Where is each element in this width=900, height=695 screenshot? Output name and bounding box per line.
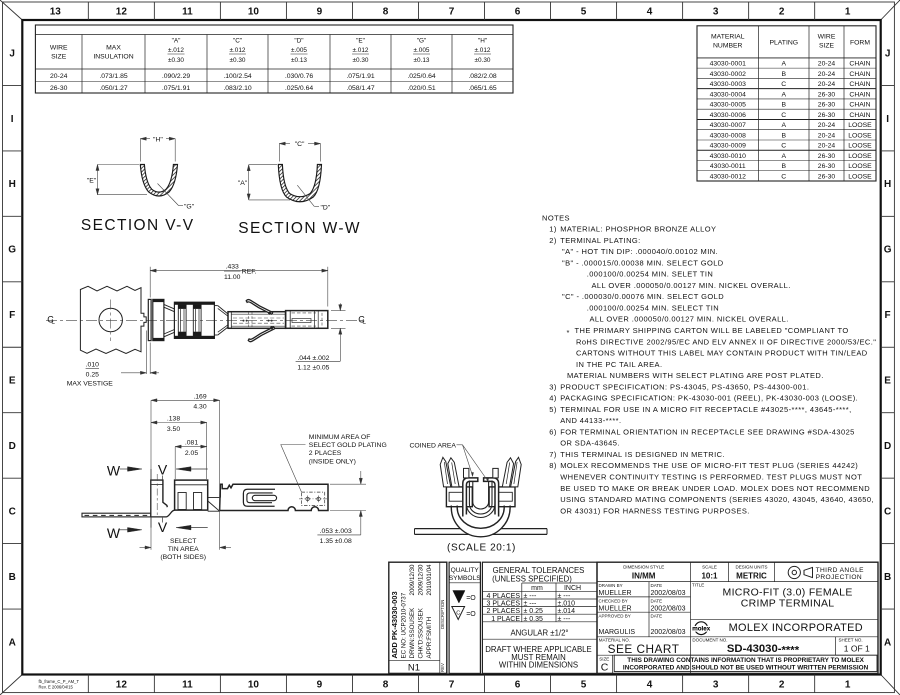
svg-text:43030-0002: 43030-0002 <box>710 71 747 78</box>
svg-text:± ---: ± --- <box>558 616 571 623</box>
svg-text:2 PLACES: 2 PLACES <box>309 450 342 457</box>
svg-text:SIZE: SIZE <box>51 54 67 61</box>
svg-text:E: E <box>9 376 16 387</box>
svg-text:"B" - .000015/0.00038 MIN. SEL: "B" - .000015/0.00038 MIN. SELECT GOLD <box>562 258 724 267</box>
svg-text:9: 9 <box>317 679 323 690</box>
svg-text:SEE CHART: SEE CHART <box>608 642 680 656</box>
svg-text:"H": "H" <box>478 38 487 45</box>
svg-text:LOOSE: LOOSE <box>848 173 872 180</box>
svg-text:INCORPORATED AND SHOULD NOT BE: INCORPORATED AND SHOULD NOT BE USED WITH… <box>623 665 869 672</box>
svg-text:H: H <box>884 179 891 190</box>
svg-text:MATERIAL NUMBERS WITH SELECT P: MATERIAL NUMBERS WITH SELECT PLATING ARE… <box>567 371 824 380</box>
svg-text:SHEET NO.: SHEET NO. <box>839 638 863 643</box>
svg-text:TERMINAL PLATING:: TERMINAL PLATING: <box>560 236 641 245</box>
svg-text:REF.: REF. <box>242 268 257 275</box>
svg-text:2009/12/30: 2009/12/30 <box>418 564 425 596</box>
svg-text:.073/1.85: .073/1.85 <box>99 73 128 80</box>
svg-text:I: I <box>11 114 14 125</box>
svg-text:1 OF 1: 1 OF 1 <box>844 643 870 653</box>
svg-text:A: A <box>781 61 786 68</box>
svg-text:3.50: 3.50 <box>167 426 180 433</box>
svg-text:6): 6) <box>549 427 557 436</box>
svg-text:B: B <box>781 71 786 78</box>
svg-text:"D": "D" <box>294 38 303 45</box>
svg-text:.075/1.91: .075/1.91 <box>162 85 191 92</box>
svg-text:"E": "E" <box>356 38 365 45</box>
svg-text:I: I <box>886 114 889 125</box>
svg-text:.020/0.51: .020/0.51 <box>407 85 436 92</box>
svg-text:0.25: 0.25 <box>86 371 99 378</box>
svg-text:REV: REV <box>440 663 445 672</box>
svg-text:.433: .433 <box>226 264 239 271</box>
svg-text:MINIMUM AREA OF: MINIMUM AREA OF <box>309 434 371 441</box>
svg-text:C: C <box>781 112 786 119</box>
svg-text:±0.30: ±0.30 <box>475 57 491 64</box>
svg-text:MOLEX INCORPORATED: MOLEX INCORPORATED <box>729 622 863 634</box>
svg-text:20-24: 20-24 <box>818 132 836 139</box>
svg-text:43030-0012: 43030-0012 <box>710 173 747 180</box>
svg-text:C: C <box>781 81 786 88</box>
svg-text:"H": "H" <box>153 136 163 143</box>
svg-text:.044 ±.002: .044 ±.002 <box>297 355 329 362</box>
svg-text:CHAIN: CHAIN <box>849 91 870 98</box>
svg-text:G: G <box>8 245 16 256</box>
svg-text:2002/08/03: 2002/08/03 <box>651 590 686 597</box>
svg-text:20-24: 20-24 <box>818 71 836 78</box>
svg-text:LOOSE: LOOSE <box>848 153 872 160</box>
svg-text:2: 2 <box>779 7 785 18</box>
svg-text:CARTONS WITHOUT THIS LABEL MAY: CARTONS WITHOUT THIS LABEL MAY CONTAIN P… <box>576 349 868 358</box>
svg-text:CRIMP TERMINAL: CRIMP TERMINAL <box>741 598 835 610</box>
svg-text:SELECT: SELECT <box>170 538 196 545</box>
svg-text:±.012: ±.012 <box>168 47 184 54</box>
svg-text:B: B <box>781 102 786 109</box>
svg-text:±.012: ±.012 <box>475 47 491 54</box>
svg-text:1.35 ±0.08: 1.35 ±0.08 <box>320 538 352 545</box>
svg-text:THIRD ANGLE: THIRD ANGLE <box>816 567 865 574</box>
svg-text:E: E <box>884 376 891 387</box>
svg-text:2009/12/30: 2009/12/30 <box>409 564 416 596</box>
svg-text:MATERIAL: MATERIAL <box>711 34 745 41</box>
svg-text:DATE: DATE <box>651 614 663 619</box>
svg-text:THIS TERMINAL IS DESIGNED IN M: THIS TERMINAL IS DESIGNED IN METRIC. <box>560 450 725 459</box>
svg-text:.025/0.64: .025/0.64 <box>285 85 314 92</box>
svg-text:DESCRIPTION: DESCRIPTION <box>440 600 445 629</box>
svg-text:20-24: 20-24 <box>50 73 68 80</box>
svg-text:C: C <box>456 610 460 616</box>
svg-text:BE USED TO MAKE OR BREAK UNDER: BE USED TO MAKE OR BREAK UNDER LOAD. MOL… <box>560 484 870 493</box>
svg-text:SCALE: SCALE <box>702 565 717 570</box>
svg-text:43030-0010: 43030-0010 <box>710 153 747 160</box>
svg-text:LOOSE: LOOSE <box>848 122 872 129</box>
svg-text:QUALITY: QUALITY <box>451 567 480 574</box>
svg-text:C: C <box>781 143 786 150</box>
svg-text:*: * <box>567 328 570 337</box>
svg-text:F: F <box>9 310 15 321</box>
svg-text:10: 10 <box>248 7 260 18</box>
svg-text:MARGULIS: MARGULIS <box>599 629 636 636</box>
svg-text:±.005: ±.005 <box>291 47 307 54</box>
svg-text:D: D <box>9 441 16 452</box>
svg-text:12: 12 <box>116 7 128 18</box>
svg-text:1): 1) <box>549 225 557 234</box>
svg-text:"C": "C" <box>233 38 242 45</box>
svg-text:CHAIN: CHAIN <box>849 71 870 78</box>
svg-text:(BOTH SIDES): (BOTH SIDES) <box>160 554 206 561</box>
svg-text:7: 7 <box>449 7 455 18</box>
svg-text:DRWN:SSOUSEK: DRWN:SSOUSEK <box>409 607 416 659</box>
svg-text:D: D <box>884 441 891 452</box>
svg-text:A: A <box>781 91 786 98</box>
svg-text:43030-0007: 43030-0007 <box>710 122 747 129</box>
svg-text:WIRE: WIRE <box>50 45 68 52</box>
svg-text:molex: molex <box>692 625 710 632</box>
svg-text:3: 3 <box>713 679 719 690</box>
svg-text:CHAIN: CHAIN <box>849 102 870 109</box>
svg-text:.010: .010 <box>86 361 99 368</box>
svg-text:THE PRIMARY SHIPPING CARTON WI: THE PRIMARY SHIPPING CARTON WILL BE LABE… <box>575 326 849 335</box>
svg-text:CHAIN: CHAIN <box>849 61 870 68</box>
svg-text:13: 13 <box>50 7 62 18</box>
svg-text:± 0.25: ± 0.25 <box>524 608 544 615</box>
svg-text:11: 11 <box>182 7 193 18</box>
svg-text:MUELLER: MUELLER <box>599 590 632 597</box>
svg-text:6: 6 <box>515 679 521 690</box>
svg-text:J: J <box>9 48 15 59</box>
svg-text:INSULATION: INSULATION <box>93 54 133 61</box>
svg-text:± ---: ± --- <box>524 601 537 608</box>
svg-text:±.010: ±.010 <box>558 601 576 608</box>
svg-text:4: 4 <box>647 679 653 690</box>
svg-text:2002/08/03: 2002/08/03 <box>651 606 686 613</box>
svg-text:.082/2.08: .082/2.08 <box>468 73 497 80</box>
svg-text:LOOSE: LOOSE <box>848 143 872 150</box>
svg-text:8: 8 <box>383 679 389 690</box>
svg-text:26-30: 26-30 <box>818 173 836 180</box>
svg-text:A: A <box>884 637 891 648</box>
svg-text:A: A <box>781 153 786 160</box>
svg-text:2): 2) <box>549 236 557 245</box>
svg-text:SELECT GOLD PLATING: SELECT GOLD PLATING <box>309 442 387 449</box>
svg-text:MICRO-FIT (3.0) FEMALE: MICRO-FIT (3.0) FEMALE <box>723 586 853 598</box>
svg-text:26-30: 26-30 <box>818 91 836 98</box>
svg-text:SIZE: SIZE <box>819 43 835 50</box>
svg-text:DOCUMENT NO.: DOCUMENT NO. <box>692 638 727 643</box>
svg-text:(INSIDE ONLY): (INSIDE ONLY) <box>309 459 356 466</box>
svg-text:43030-0008: 43030-0008 <box>710 132 747 139</box>
svg-text:C: C <box>781 173 786 180</box>
svg-text:1 PLACE: 1 PLACE <box>491 616 520 623</box>
svg-text:2: 2 <box>779 679 785 690</box>
svg-text:7): 7) <box>549 450 557 459</box>
svg-text:"C": "C" <box>295 141 305 148</box>
svg-text:OR 43031) FOR HARNESS TESTING: OR 43031) FOR HARNESS TESTING PURPOSES. <box>560 506 750 515</box>
svg-text:10: 10 <box>248 679 260 690</box>
svg-text:MAX: MAX <box>106 45 121 52</box>
svg-text:.065/1.65: .065/1.65 <box>468 85 497 92</box>
svg-text:±.014: ±.014 <box>558 608 576 615</box>
svg-text:WIRE: WIRE <box>818 34 836 41</box>
svg-text:.083/2.10: .083/2.10 <box>223 85 252 92</box>
svg-text:ANGULAR ±1/2°: ANGULAR ±1/2° <box>510 629 568 638</box>
svg-text:±.005: ±.005 <box>414 47 430 54</box>
svg-text:SECTION W-W: SECTION W-W <box>238 220 361 237</box>
svg-text:43030-0003: 43030-0003 <box>710 81 747 88</box>
svg-text:9: 9 <box>317 7 323 18</box>
svg-text:±0.30: ±0.30 <box>168 57 184 64</box>
svg-text:L: L <box>51 319 55 326</box>
svg-text:2002/08/03: 2002/08/03 <box>651 629 686 636</box>
svg-text:TITLE: TITLE <box>692 583 704 588</box>
svg-text:7: 7 <box>449 679 455 690</box>
svg-text:ALL OVER .000050/0.00127 MIN.: ALL OVER .000050/0.00127 MIN. NICKEL OVE… <box>590 315 789 324</box>
svg-text:8: 8 <box>383 7 389 18</box>
svg-text:4): 4) <box>549 394 557 403</box>
svg-text:± 0.35: ± 0.35 <box>524 616 544 623</box>
svg-text:20-24: 20-24 <box>818 81 836 88</box>
svg-text:H: H <box>9 179 16 190</box>
svg-text:C: C <box>884 506 891 517</box>
svg-text:4: 4 <box>647 7 653 18</box>
svg-text:APPR:FSMITH: APPR:FSMITH <box>426 617 433 659</box>
svg-text:26-30: 26-30 <box>818 102 836 109</box>
svg-text:F: F <box>885 310 891 321</box>
svg-text:WITHIN DIMENSIONS: WITHIN DIMENSIONS <box>499 661 578 670</box>
svg-text:A: A <box>781 122 786 129</box>
svg-text:C: C <box>601 661 609 673</box>
svg-text:.090/2.29: .090/2.29 <box>162 73 191 80</box>
svg-text:CHK'D:SSOUSEK: CHK'D:SSOUSEK <box>418 607 425 658</box>
svg-text:±.012: ±.012 <box>230 47 246 54</box>
svg-text:6: 6 <box>515 7 521 18</box>
svg-text:11.00: 11.00 <box>224 274 241 281</box>
svg-text:1.12 ±0.05: 1.12 ±0.05 <box>297 364 329 371</box>
svg-text:5: 5 <box>581 7 587 18</box>
svg-text:Rev. E 2006/04/15: Rev. E 2006/04/15 <box>39 685 74 690</box>
svg-text:EC NO: UCP2010-0737: EC NO: UCP2010-0737 <box>401 592 408 658</box>
svg-text:G: G <box>884 245 892 256</box>
svg-text:MAX VESTIGE: MAX VESTIGE <box>67 380 114 387</box>
svg-text:± ---: ± --- <box>558 593 571 600</box>
svg-text:TIN AREA: TIN AREA <box>168 546 199 553</box>
svg-text:"C" - .000030/0.00076 MIN. SEL: "C" - .000030/0.00076 MIN. SELECT GOLD <box>562 292 724 301</box>
svg-text:26-30: 26-30 <box>818 163 836 170</box>
svg-text:.053 ±.003: .053 ±.003 <box>320 528 352 535</box>
svg-text:DRAWN BY: DRAWN BY <box>599 583 623 588</box>
svg-text:B: B <box>9 572 16 583</box>
svg-text:A: A <box>9 637 16 648</box>
svg-text:TERMINAL FOR USE IN A MICRO FI: TERMINAL FOR USE IN A MICRO FIT RECEPTAC… <box>560 405 851 414</box>
svg-text:L: L <box>362 319 366 326</box>
svg-text:2 PLACES: 2 PLACES <box>487 608 521 615</box>
svg-text:DESIGN UNITS: DESIGN UNITS <box>735 565 767 570</box>
svg-text:3 PLACES: 3 PLACES <box>487 601 521 608</box>
svg-text:V: V <box>158 461 168 477</box>
svg-text:=O: =O <box>466 595 476 602</box>
svg-text:43030-0005: 43030-0005 <box>710 102 747 109</box>
svg-text:APPROVED BY: APPROVED BY <box>599 614 631 619</box>
svg-text:43030-0009: 43030-0009 <box>710 143 747 150</box>
svg-text:26-30: 26-30 <box>50 85 68 92</box>
svg-text:PLATING: PLATING <box>769 40 798 47</box>
svg-text:±0.30: ±0.30 <box>353 57 369 64</box>
svg-text:4.30: 4.30 <box>193 404 206 411</box>
svg-text:3): 3) <box>549 382 557 391</box>
svg-text:.058/1.47: .058/1.47 <box>346 85 375 92</box>
svg-text:INCH: INCH <box>564 585 581 592</box>
svg-text:(UNLESS SPECIFIED): (UNLESS SPECIFIED) <box>492 574 572 583</box>
svg-text:.100/2.54: .100/2.54 <box>223 73 252 80</box>
svg-text:COINED AREA: COINED AREA <box>410 443 457 450</box>
svg-text:1: 1 <box>845 679 851 690</box>
svg-text:SECTION V-V: SECTION V-V <box>81 217 195 234</box>
svg-text:AND 44133-****.: AND 44133-****. <box>560 416 621 425</box>
svg-text:.075/1.91: .075/1.91 <box>346 73 375 80</box>
svg-text:"A" - HOT TIN DIP: .000040/0.0: "A" - HOT TIN DIP: .000040/0.00102 MIN. <box>562 247 718 256</box>
svg-text:USING STANDARD MATING COMPONEN: USING STANDARD MATING COMPONENTS (SERIES… <box>560 495 874 504</box>
svg-text:SD-43030-****: SD-43030-**** <box>727 643 800 657</box>
svg-text:mm: mm <box>531 585 543 592</box>
svg-text:11: 11 <box>182 679 193 690</box>
svg-text:NUMBER: NUMBER <box>713 43 743 50</box>
svg-text:N1: N1 <box>408 663 420 674</box>
svg-text:5: 5 <box>581 679 587 690</box>
svg-text:.138: .138 <box>167 416 180 423</box>
svg-text:FOR TERMINAL ORIENTATION IN RE: FOR TERMINAL ORIENTATION IN RECEPTACLE S… <box>560 427 855 436</box>
svg-text:C: C <box>9 506 16 517</box>
svg-text:DIMENSION STYLE: DIMENSION STYLE <box>623 565 664 570</box>
svg-text:"G": "G" <box>417 38 427 45</box>
svg-text:NOTES: NOTES <box>542 213 570 222</box>
svg-text:FORM: FORM <box>850 40 870 47</box>
svg-text:CHAIN: CHAIN <box>849 112 870 119</box>
svg-text:"A": "A" <box>172 38 181 45</box>
svg-text:.169: .169 <box>193 393 206 400</box>
svg-text:.000100/0.00254 MIN. SELET TIN: .000100/0.00254 MIN. SELET TIN <box>587 270 714 279</box>
svg-text:±0.13: ±0.13 <box>291 57 307 64</box>
svg-text:.050/1.27: .050/1.27 <box>99 85 128 92</box>
svg-text:±0.30: ±0.30 <box>230 57 246 64</box>
svg-text:LOOSE: LOOSE <box>848 132 872 139</box>
svg-text:CHAIN: CHAIN <box>849 81 870 88</box>
svg-text:METRIC: METRIC <box>736 571 767 580</box>
svg-text:PROJECTION: PROJECTION <box>816 574 863 581</box>
svg-text:43030-0011: 43030-0011 <box>710 163 746 170</box>
svg-text:.030/0.76: .030/0.76 <box>285 73 314 80</box>
svg-text:THIS DRAWING CONTAINS INFORMAT: THIS DRAWING CONTAINS INFORMATION THAT I… <box>627 657 864 664</box>
svg-text:4 PLACES: 4 PLACES <box>487 593 521 600</box>
svg-text:(SCALE 20:1): (SCALE 20:1) <box>447 543 516 554</box>
svg-text:IN THE PC TAIL AREA.: IN THE PC TAIL AREA. <box>576 360 662 369</box>
svg-text:3: 3 <box>713 7 719 18</box>
svg-text:PRODUCT SPECIFICATION: PS-4304: PRODUCT SPECIFICATION: PS-43045, PS-4365… <box>560 382 809 391</box>
svg-text:fb_frame_C_P_AM_T: fb_frame_C_P_AM_T <box>39 679 80 684</box>
svg-text:43030-0006: 43030-0006 <box>710 112 747 119</box>
svg-text:8): 8) <box>549 461 557 470</box>
svg-text:12: 12 <box>116 679 128 690</box>
svg-text:MOLEX RECOMMENDS THE USE OF MI: MOLEX RECOMMENDS THE USE OF MICRO-FIT TE… <box>560 461 858 470</box>
svg-text:26-30: 26-30 <box>818 112 836 119</box>
svg-text:CHECKED BY: CHECKED BY <box>599 598 628 603</box>
svg-text:MUELLER: MUELLER <box>599 606 632 613</box>
svg-text:"G": "G" <box>184 204 195 211</box>
svg-text:B: B <box>884 572 891 583</box>
svg-text:PACKAGING SPECIFICATION: PK-43: PACKAGING SPECIFICATION: PK-43030-001 (R… <box>560 394 858 403</box>
svg-text:2.05: 2.05 <box>185 450 198 457</box>
svg-text:IN/MM: IN/MM <box>632 571 656 580</box>
svg-text:RoHS DIRECTIVE 2002/95/EC AN: RoHS DIRECTIVE 2002/95/EC AND ELV ANNEX … <box>576 337 876 346</box>
svg-text:W: W <box>107 525 121 541</box>
svg-text:.025/0.64: .025/0.64 <box>407 73 436 80</box>
svg-text:SYMBOLS: SYMBOLS <box>449 575 481 582</box>
svg-text:±0.13: ±0.13 <box>414 57 430 64</box>
svg-text:"D": "D" <box>321 205 331 212</box>
svg-text:B: B <box>781 163 786 170</box>
svg-text:DATE: DATE <box>651 598 663 603</box>
svg-text:"E": "E" <box>87 177 97 184</box>
svg-text:43030-0001: 43030-0001 <box>710 61 747 68</box>
svg-text:±.012: ±.012 <box>353 47 369 54</box>
svg-text:26-30: 26-30 <box>818 153 836 160</box>
svg-text:20-24: 20-24 <box>818 61 836 68</box>
svg-text:1: 1 <box>845 7 851 18</box>
svg-text:MATERIAL: PHOSPHOR BRONZE ALLO: MATERIAL: PHOSPHOR BRONZE ALLOY <box>560 225 716 234</box>
svg-text:20-24: 20-24 <box>818 143 836 150</box>
svg-text:J: J <box>885 48 891 59</box>
svg-text:2010/01/04: 2010/01/04 <box>426 564 433 596</box>
svg-text:ADD PK-43030-003: ADD PK-43030-003 <box>390 591 399 658</box>
svg-text:± ---: ± --- <box>524 593 537 600</box>
svg-text:.000100/0.00254 MIN. SELECT TI: .000100/0.00254 MIN. SELECT TIN <box>587 303 719 312</box>
svg-text:5): 5) <box>549 405 557 414</box>
svg-text:.081: .081 <box>185 440 198 447</box>
svg-text:10:1: 10:1 <box>701 571 718 580</box>
svg-text:OR SDA-43645.: OR SDA-43645. <box>560 439 620 448</box>
svg-text:WHENEVER CONTINUITY TESTING IS: WHENEVER CONTINUITY TESTING IS PERFORMED… <box>560 473 862 482</box>
svg-text:LOOSE: LOOSE <box>848 163 872 170</box>
svg-text:DATE: DATE <box>651 583 663 588</box>
svg-text:=O: =O <box>466 611 476 618</box>
svg-text:20-24: 20-24 <box>818 122 836 129</box>
svg-text:ALL OVER .000050/0.00127 MIN.: ALL OVER .000050/0.00127 MIN. NICKEL OVE… <box>592 281 791 290</box>
svg-text:W: W <box>107 462 121 478</box>
svg-text:43030-0004: 43030-0004 <box>710 91 747 98</box>
svg-text:B: B <box>781 132 786 139</box>
svg-text:"A": "A" <box>238 180 248 187</box>
